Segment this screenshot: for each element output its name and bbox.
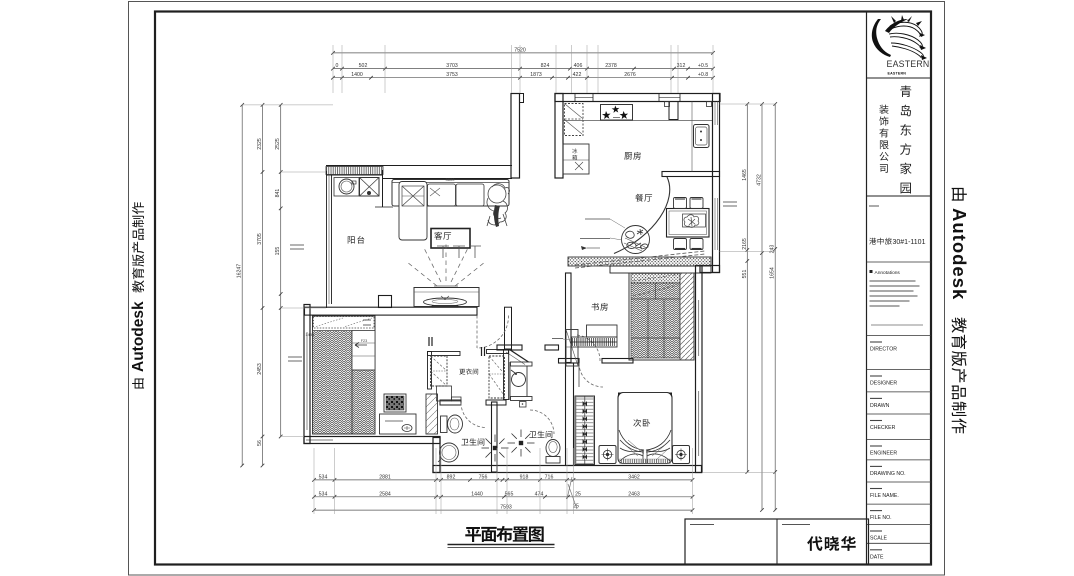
- svg-text:56: 56: [257, 440, 263, 446]
- svg-text:4732: 4732: [757, 174, 763, 186]
- svg-text:474: 474: [535, 491, 544, 497]
- svg-text:FILE NO.: FILE NO.: [870, 515, 892, 521]
- svg-text:756: 756: [479, 474, 488, 480]
- svg-text:551: 551: [742, 270, 748, 279]
- svg-text:DIRECTOR: DIRECTOR: [870, 347, 897, 353]
- svg-text:2325: 2325: [257, 138, 263, 150]
- svg-text:243: 243: [770, 245, 776, 254]
- svg-text:0: 0: [336, 63, 339, 69]
- svg-text:3462: 3462: [628, 474, 640, 480]
- svg-text:+0.8: +0.8: [698, 72, 708, 78]
- svg-text:DATE: DATE: [870, 554, 884, 560]
- svg-text:534: 534: [319, 474, 328, 480]
- svg-text:Autodesk: Autodesk: [130, 301, 147, 372]
- svg-text:3703: 3703: [446, 63, 458, 69]
- svg-text:7593: 7593: [500, 505, 512, 511]
- svg-text:ENGINEER: ENGINEER: [870, 451, 897, 457]
- svg-text:841: 841: [275, 189, 281, 198]
- svg-text:EASTERN: EASTERN: [887, 59, 930, 69]
- svg-text:2881: 2881: [379, 474, 391, 480]
- svg-text:2463: 2463: [628, 491, 640, 497]
- svg-text:2378: 2378: [605, 63, 617, 69]
- svg-text:DRAWING NO.: DRAWING NO.: [870, 471, 906, 477]
- svg-text:DESIGNER: DESIGNER: [870, 381, 897, 387]
- svg-text:16247: 16247: [237, 264, 243, 279]
- svg-text:2525: 2525: [275, 138, 281, 150]
- svg-text:1440: 1440: [471, 491, 483, 497]
- svg-text:716: 716: [545, 474, 554, 480]
- svg-text:3705: 3705: [257, 233, 263, 245]
- svg-text:CHECKER: CHECKER: [870, 425, 896, 431]
- svg-text:1400: 1400: [351, 72, 363, 78]
- svg-text:918: 918: [520, 474, 529, 480]
- svg-text:565: 565: [505, 491, 514, 497]
- svg-text:892: 892: [447, 474, 456, 480]
- svg-text:FILE NAME.: FILE NAME.: [870, 493, 899, 499]
- svg-text:2676: 2676: [624, 72, 636, 78]
- svg-text:SCALE: SCALE: [870, 536, 888, 542]
- svg-text:1465: 1465: [742, 169, 748, 181]
- svg-text:534: 534: [319, 491, 328, 497]
- svg-text:3600: 3600: [446, 177, 456, 182]
- svg-text:3753: 3753: [446, 72, 458, 78]
- svg-text:502: 502: [359, 63, 368, 69]
- svg-text:1873: 1873: [530, 72, 542, 78]
- svg-text:DRAWN: DRAWN: [870, 403, 890, 409]
- svg-text:25: 25: [575, 491, 581, 497]
- svg-text:F23: F23: [361, 339, 368, 343]
- svg-text:2453: 2453: [257, 363, 263, 375]
- svg-text:EASTERN: EASTERN: [888, 72, 907, 76]
- svg-text:1435: 1435: [305, 332, 315, 337]
- svg-text:422: 422: [573, 72, 582, 78]
- svg-text:+0.5: +0.5: [698, 63, 708, 69]
- svg-text:Annotations: Annotations: [875, 270, 901, 276]
- svg-text:2584: 2584: [379, 491, 391, 497]
- svg-text:Autodesk: Autodesk: [949, 208, 970, 300]
- svg-text:1654: 1654: [770, 267, 776, 279]
- svg-text:2165: 2165: [742, 238, 748, 250]
- svg-text:30#1-1101: 30#1-1101: [893, 239, 926, 246]
- svg-text:824: 824: [541, 63, 550, 69]
- svg-text:406: 406: [574, 63, 583, 69]
- svg-text:155: 155: [275, 247, 281, 256]
